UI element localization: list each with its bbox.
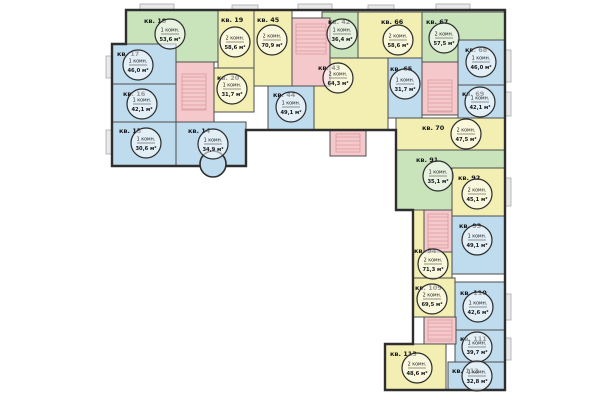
unit-info-circle-kv-69: 1 комн.42,1 м²: [465, 87, 495, 117]
unit-rooms: 1 комн.: [468, 234, 487, 240]
unit-rooms: 2 комн.: [435, 32, 454, 38]
unit-info-circle-kv-92: 2 комн.45,1 м²: [462, 179, 492, 209]
unit-rooms: 2 комн.: [423, 293, 442, 299]
unit-info-circle-kv-44: 1 комн.49,1 м²: [276, 92, 306, 122]
unit-area: 49,1 м²: [280, 110, 301, 116]
unit-area: 70,9 м²: [261, 43, 282, 49]
unit-info-circle-kv-15: 1 комн.30,6 м²: [131, 128, 161, 158]
unit-rooms: 2 комн.: [329, 72, 348, 78]
unit-info-circle-kv-43: 2 комн.64,3 м²: [323, 63, 353, 93]
unit-area: 46,0 м²: [127, 68, 148, 74]
unit-area: 31,7 м²: [221, 92, 242, 98]
unit-area: 36,4 м²: [331, 37, 352, 43]
unit-rooms: 1 комн.: [137, 137, 156, 143]
unit-info-circle-kv-93: 1 комн.49,1 м²: [462, 225, 492, 255]
unit-rooms: 1 комн.: [472, 56, 491, 62]
unit-rooms: 1 комн.: [129, 59, 148, 65]
unit-info-circle-kv-113: 2 комн.48,6 м²: [402, 353, 432, 383]
unit-area: 30,6 м²: [135, 146, 156, 152]
unit-rooms: 1 комн.: [468, 341, 487, 347]
floor-plan-drawing: кв. 141 комн.34,9 м²кв. 151 комн.30,6 м²…: [0, 0, 600, 400]
unit-rooms: 1 комн.: [282, 101, 301, 107]
unit-rooms: 2 комн.: [389, 34, 408, 40]
unit-rooms: 1 комн.: [133, 98, 152, 104]
unit-info-circle-kv-17: 1 комн.46,0 м²: [123, 50, 153, 80]
unit-rooms: 2 комн.: [468, 188, 487, 194]
unit-area: 48,6 м²: [406, 371, 427, 377]
unit-rooms: 2 комн.: [424, 258, 443, 264]
unit-area: 71,3 м²: [422, 267, 443, 273]
unit-rooms: 1 комн.: [396, 78, 415, 84]
unit-info-circle-kv-42: 1 комн.36,4 м²: [327, 19, 357, 49]
unit-area: 32,8 м²: [466, 379, 487, 385]
unit-rooms: 1 комн.: [223, 83, 242, 89]
unit-rooms: 2 комн.: [408, 362, 427, 368]
unit-area: 49,1 м²: [466, 243, 487, 249]
core-5-stair-core: [424, 317, 456, 344]
unit-info-circle-kv-70: 2 комн.47,5 м²: [451, 119, 481, 149]
unit-area: 35,1 м²: [427, 179, 448, 185]
unit-info-circle-kv-18: 1 комн.53,6 м²: [155, 19, 185, 49]
unit-info-circle-kv-68: 1 комн.46,0 м²: [466, 47, 496, 77]
unit-rooms: 1 комн.: [469, 301, 488, 307]
unit-area: 64,3 м²: [327, 81, 348, 87]
unit-rooms: 1 комн.: [333, 28, 352, 34]
unit-info-circle-kv-112: 1 комн.32,8 м²: [462, 361, 492, 391]
unit-area: 42,6 м²: [467, 310, 488, 316]
unit-info-circle-kv-65: 1 комн.31,7 м²: [390, 69, 420, 99]
unit-info-circle-kv-109: 2 комн.69,5 м²: [417, 284, 447, 314]
unit-info-circle-kv-91: 1 комн.35,1 м²: [423, 161, 453, 191]
unit-rooms: 1 комн.: [471, 96, 490, 102]
unit-area: 58,6 м²: [387, 43, 408, 49]
unit-area: 31,7 м²: [394, 87, 415, 93]
unit-info-circle-kv-19: 2 комн.58,6 м²: [220, 27, 250, 57]
unit-info-circle-kv-94: 2 комн.71,3 м²: [418, 249, 448, 279]
unit-area: 42,1 м²: [131, 107, 152, 113]
unit-area: 69,5 м²: [421, 302, 442, 308]
unit-info-circle-kv-111: 1 комн.39,7 м²: [462, 332, 492, 362]
floor-plan-canvas: кв. 141 комн.34,9 м²кв. 151 комн.30,6 м²…: [0, 0, 600, 400]
unit-rooms: 1 комн.: [468, 370, 487, 376]
unit-area: 39,7 м²: [466, 350, 487, 356]
unit-info-circle-kv-20: 1 комн.31,7 м²: [217, 74, 247, 104]
unit-area: 46,0 м²: [470, 65, 491, 71]
unit-info-circle-kv-14: 1 комн.34,9 м²: [198, 129, 228, 159]
unit-label-kv-45: кв. 45: [257, 16, 280, 24]
unit-area: 47,5 м²: [455, 137, 476, 143]
unit-rooms: 1 комн.: [429, 170, 448, 176]
unit-info-circle-kv-16: 1 комн.42,1 м²: [127, 89, 157, 119]
unit-info-circle-kv-67: 2 комн.57,5 м²: [429, 23, 459, 53]
unit-rooms: 2 комн.: [263, 34, 282, 40]
unit-area: 34,9 м²: [202, 147, 223, 153]
unit-label-kv-19: кв. 19: [221, 16, 244, 24]
unit-area: 57,5 м²: [433, 41, 454, 47]
unit-area: 53,6 м²: [159, 37, 180, 43]
unit-info-circle-kv-66: 2 комн.58,6 м²: [383, 25, 413, 55]
unit-info-circle-kv-45: 2 комн.70,9 м²: [257, 25, 287, 55]
unit-rooms: 2 комн.: [226, 36, 245, 42]
unit-area: 42,1 м²: [469, 105, 490, 111]
unit-label-kv-70: кв. 70: [422, 124, 445, 132]
unit-area: 45,1 м²: [466, 197, 487, 203]
unit-rooms: 1 комн.: [204, 138, 223, 144]
unit-area: 58,6 м²: [224, 45, 245, 51]
unit-info-circle-kv-110: 1 комн.42,6 м²: [463, 292, 493, 322]
unit-rooms: 2 комн.: [457, 128, 476, 134]
unit-rooms: 1 комн.: [161, 28, 180, 34]
